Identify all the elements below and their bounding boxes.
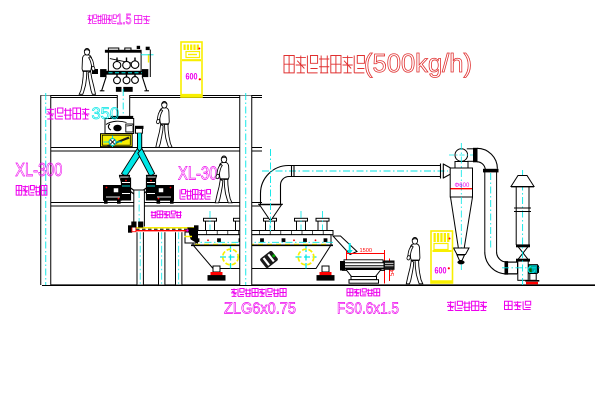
svg-text:ZLG6x0.75: ZLG6x0.75	[224, 301, 296, 318]
svg-text:600: 600	[186, 71, 198, 81]
svg-text:1500: 1500	[360, 248, 373, 254]
svg-text:FS0.6x1.5: FS0.6x1.5	[337, 301, 399, 318]
svg-text:1.5: 1.5	[117, 11, 132, 28]
svg-text:350: 350	[92, 104, 120, 123]
svg-text:600: 600	[435, 265, 447, 275]
svg-text:XL-300: XL-300	[15, 160, 62, 180]
svg-text:(500kg/h): (500kg/h)	[364, 48, 472, 78]
svg-text:Φ600: Φ600	[455, 183, 470, 189]
